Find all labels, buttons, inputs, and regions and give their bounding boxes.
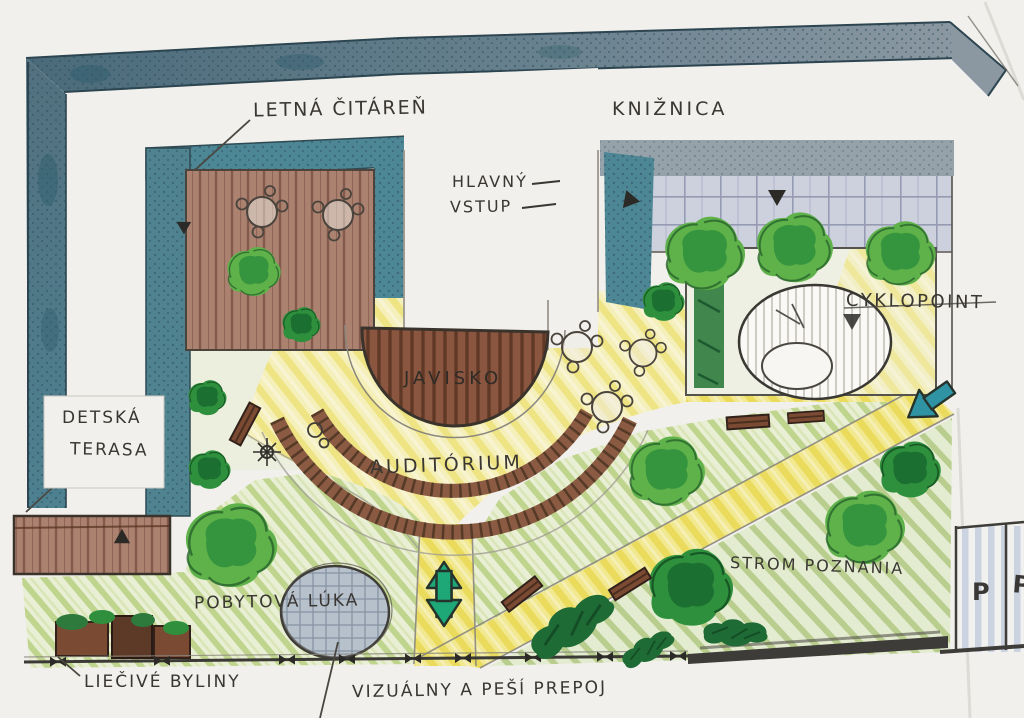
bench xyxy=(788,411,824,424)
site-plan-sketch: P P xyxy=(0,0,1024,718)
library-building-footprint xyxy=(404,68,598,350)
plan-drawing: P P xyxy=(0,0,1024,718)
reading-deck xyxy=(186,170,374,350)
children-terrace-label-box xyxy=(44,396,164,488)
cyclopoint-pavilion xyxy=(739,285,891,399)
parking-letter: P xyxy=(972,578,990,606)
children-terrace-deck xyxy=(14,516,170,574)
parking-letter: P xyxy=(1011,570,1024,599)
bench xyxy=(727,415,770,430)
shrub xyxy=(703,619,767,646)
